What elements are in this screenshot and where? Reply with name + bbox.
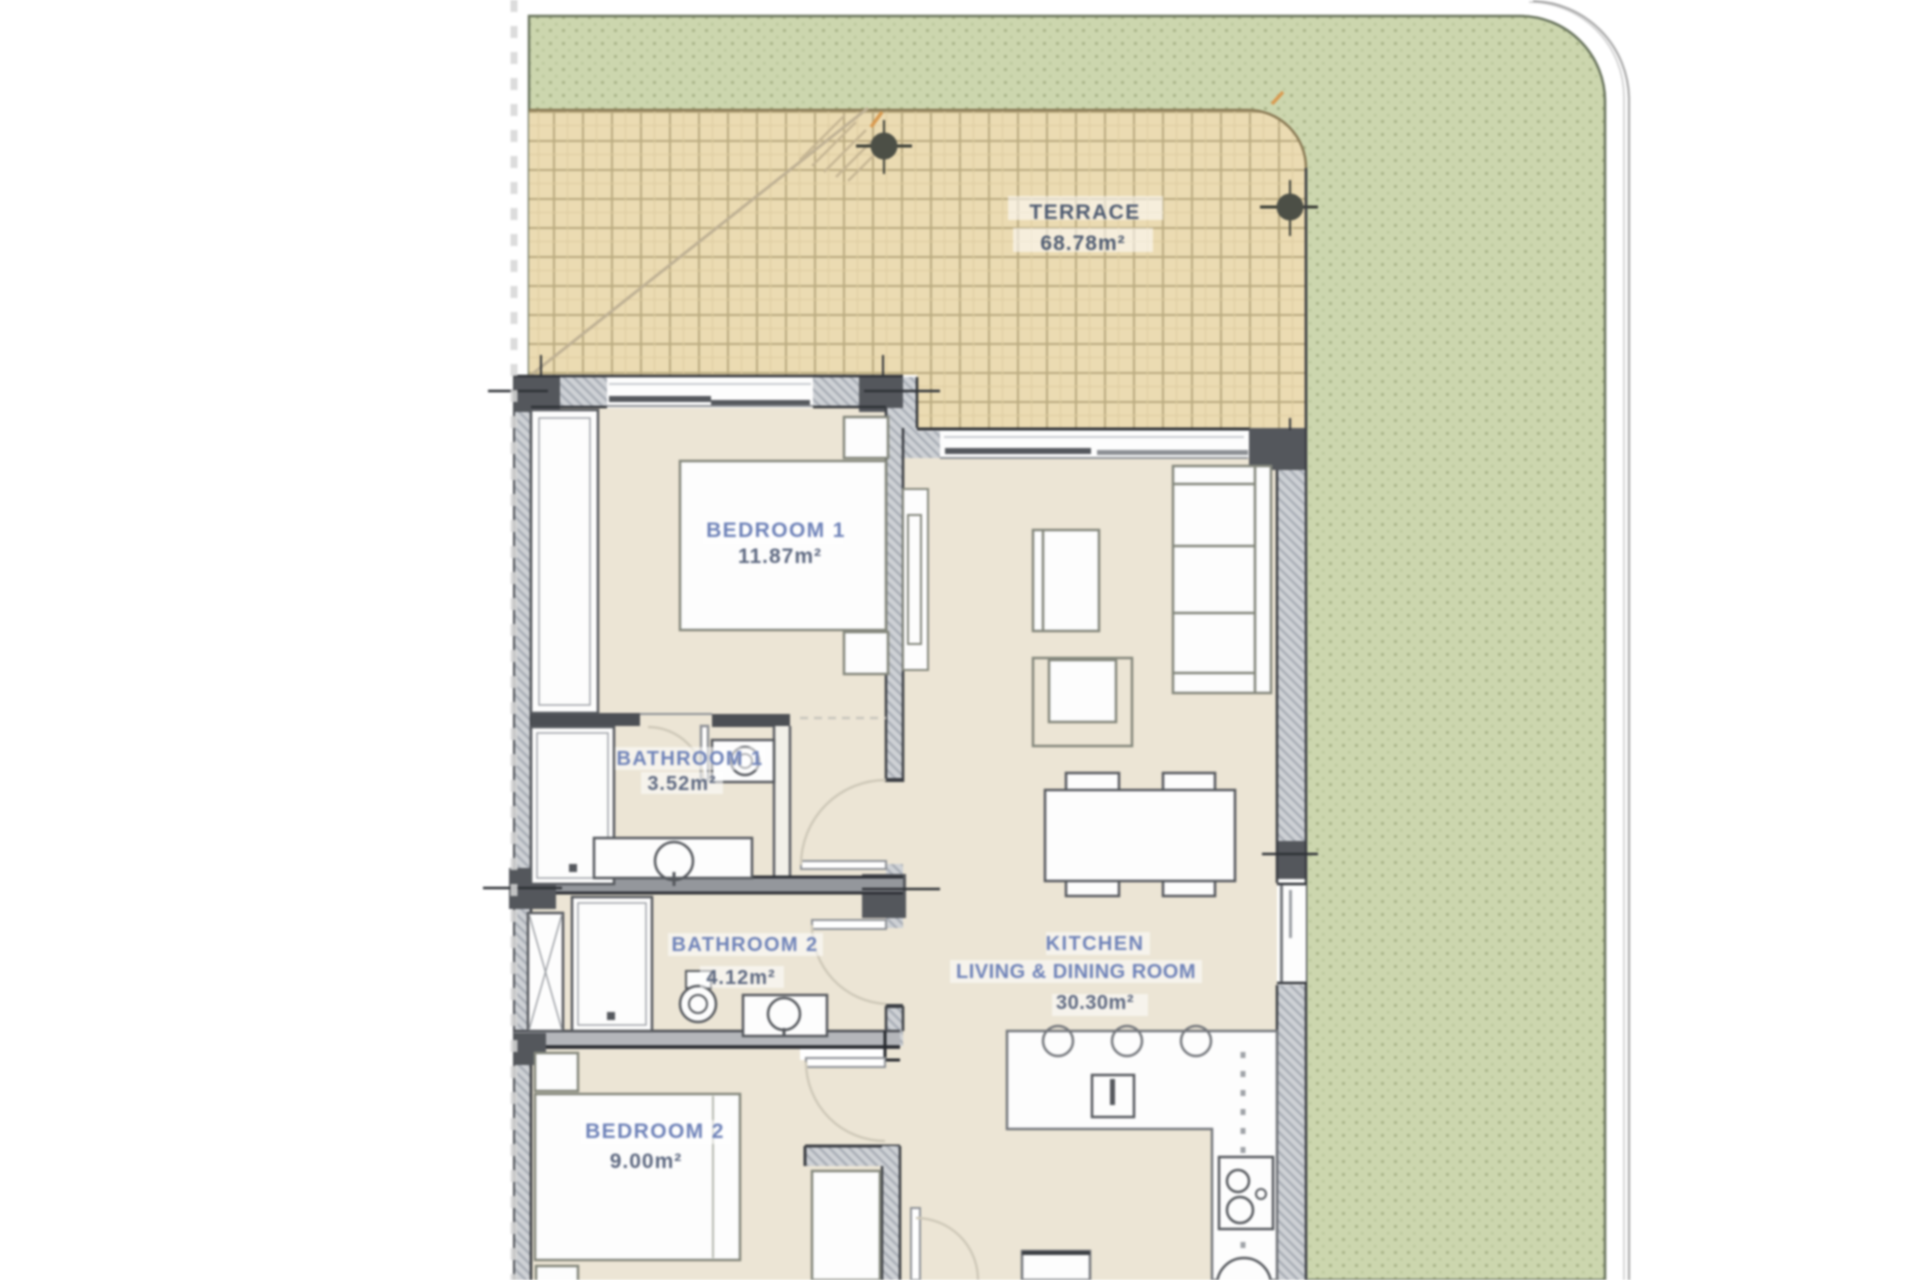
svg-text:4.12m²: 4.12m² [706, 967, 775, 989]
svg-text:BEDROOM 2: BEDROOM 2 [585, 1120, 725, 1143]
svg-text:LIVING & DINING ROOM: LIVING & DINING ROOM [956, 961, 1196, 983]
svg-text:KITCHEN: KITCHEN [1046, 933, 1145, 955]
svg-text:BATHROOM 1: BATHROOM 1 [617, 748, 764, 770]
svg-text:68.78m²: 68.78m² [1040, 232, 1125, 255]
svg-text:BATHROOM 2: BATHROOM 2 [672, 934, 819, 956]
svg-text:30.30m²: 30.30m² [1056, 992, 1134, 1014]
svg-text:9.00m²: 9.00m² [610, 1150, 683, 1173]
svg-text:BEDROOM 1: BEDROOM 1 [706, 519, 846, 542]
svg-text:11.87m²: 11.87m² [738, 545, 822, 568]
svg-text:TERRACE: TERRACE [1029, 201, 1140, 224]
svg-text:3.52m²: 3.52m² [647, 773, 716, 795]
